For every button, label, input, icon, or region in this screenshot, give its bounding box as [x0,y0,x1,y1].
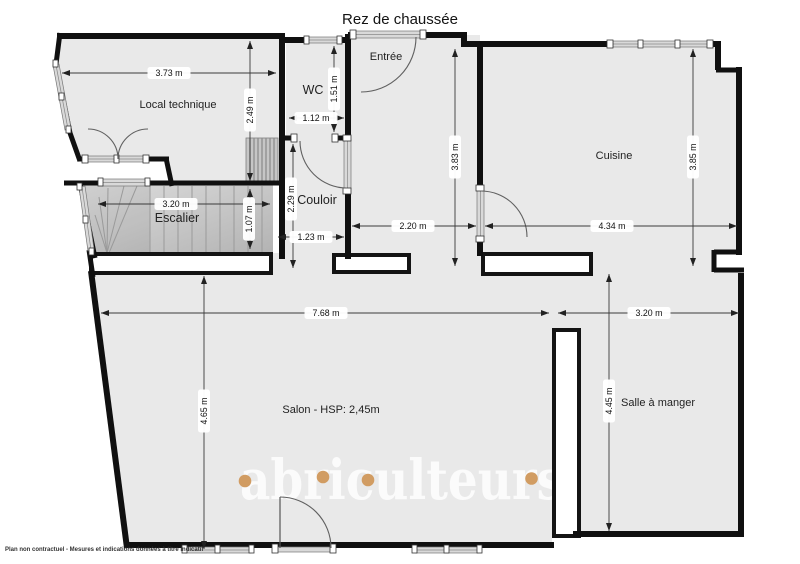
dim-hall-depth: 3.83 m [450,144,460,171]
watermark-dot [239,475,252,488]
pier-salon-cuisine [483,254,591,274]
dim-local-technique-width: 3.73 m [156,68,183,78]
dim-salle-a-manger-width: 3.20 m [636,308,663,318]
floorplan-page: abriculteurs [0,0,800,564]
label-entree: Entrée [370,51,402,63]
label-local-technique: Local technique [139,99,216,111]
dim-hall-width: 2.20 m [400,221,427,231]
dim-local-technique-depth: 2.49 m [245,97,255,124]
label-salon: Salon - HSP: 2,45m [282,404,379,416]
disclaimer-text: Plan non contractuel - Mesures et indica… [5,547,204,553]
dim-escalier-width: 3.20 m [163,199,190,209]
label-wc: WC [303,83,324,97]
dim-wc-width: 1.12 m [303,113,330,123]
label-couloir: Couloir [297,193,337,207]
pier-under-stairs [91,254,271,273]
dim-salon-depth: 4.65 m [199,398,209,425]
dim-cuisine-depth: 3.85 m [688,144,698,171]
label-salle-a-manger: Salle à manger [621,397,695,409]
dim-couloir-depth: 2.29 m [286,186,296,213]
floorplan-drawing: abriculteurs [0,0,800,564]
watermark-dot [317,471,330,484]
window-escalier-north [98,178,150,186]
dim-couloir-width: 1.23 m [298,232,325,242]
label-escalier: Escalier [155,211,199,225]
window-wc [304,36,342,44]
watermark-logo: abriculteurs [240,447,563,512]
label-cuisine: Cuisine [596,150,633,162]
dim-salon-width: 7.68 m [313,308,340,318]
watermark-dot [362,474,375,487]
dim-cuisine-width: 4.34 m [599,221,626,231]
dim-escalier-depth: 1.07 m [244,206,254,233]
pier-salon-salle-a-manger [554,330,579,536]
page-title: Rez de chaussée [342,11,458,28]
stair-upper-flight [246,138,278,185]
dim-salle-a-manger-depth: 4.45 m [604,388,614,415]
window-cuisine [607,40,713,48]
floor-salle-a-manger [573,250,741,535]
dim-wc-depth: 1.51 m [329,76,339,103]
watermark-dot [525,472,538,485]
